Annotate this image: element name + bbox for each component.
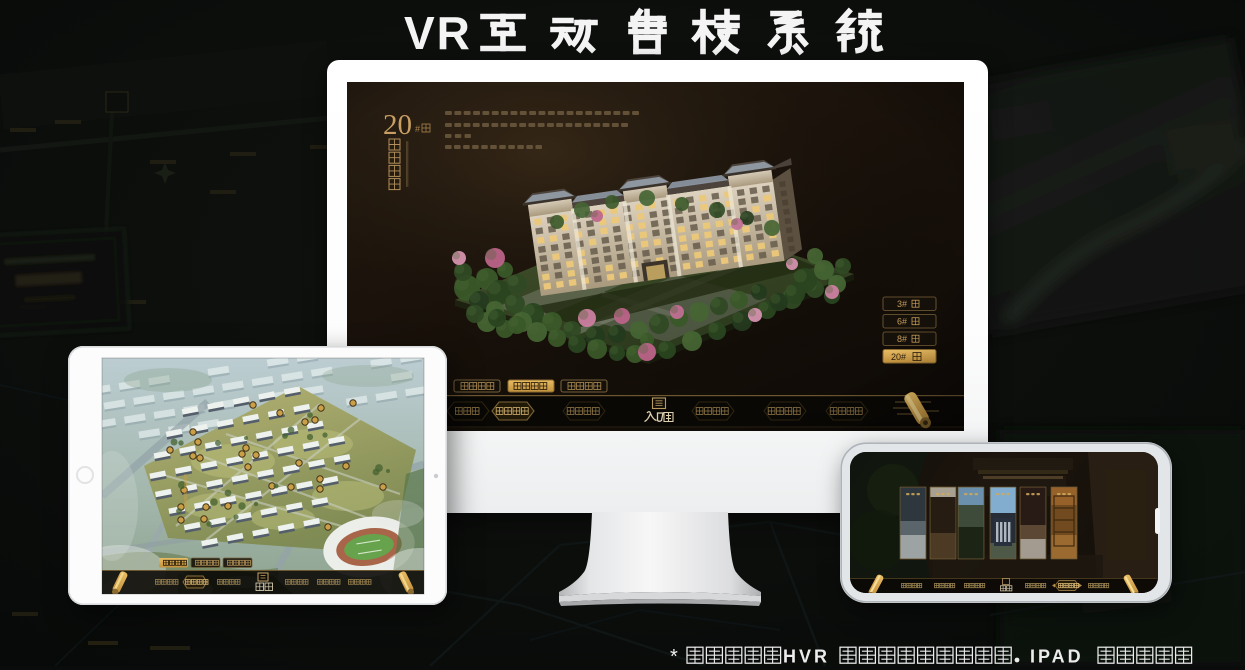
svg-text:*: * — [670, 646, 678, 668]
svg-text:HVR: HVR — [783, 647, 830, 667]
svg-text:IPAD: IPAD — [1030, 647, 1084, 667]
svg-text:VR: VR — [404, 7, 472, 58]
